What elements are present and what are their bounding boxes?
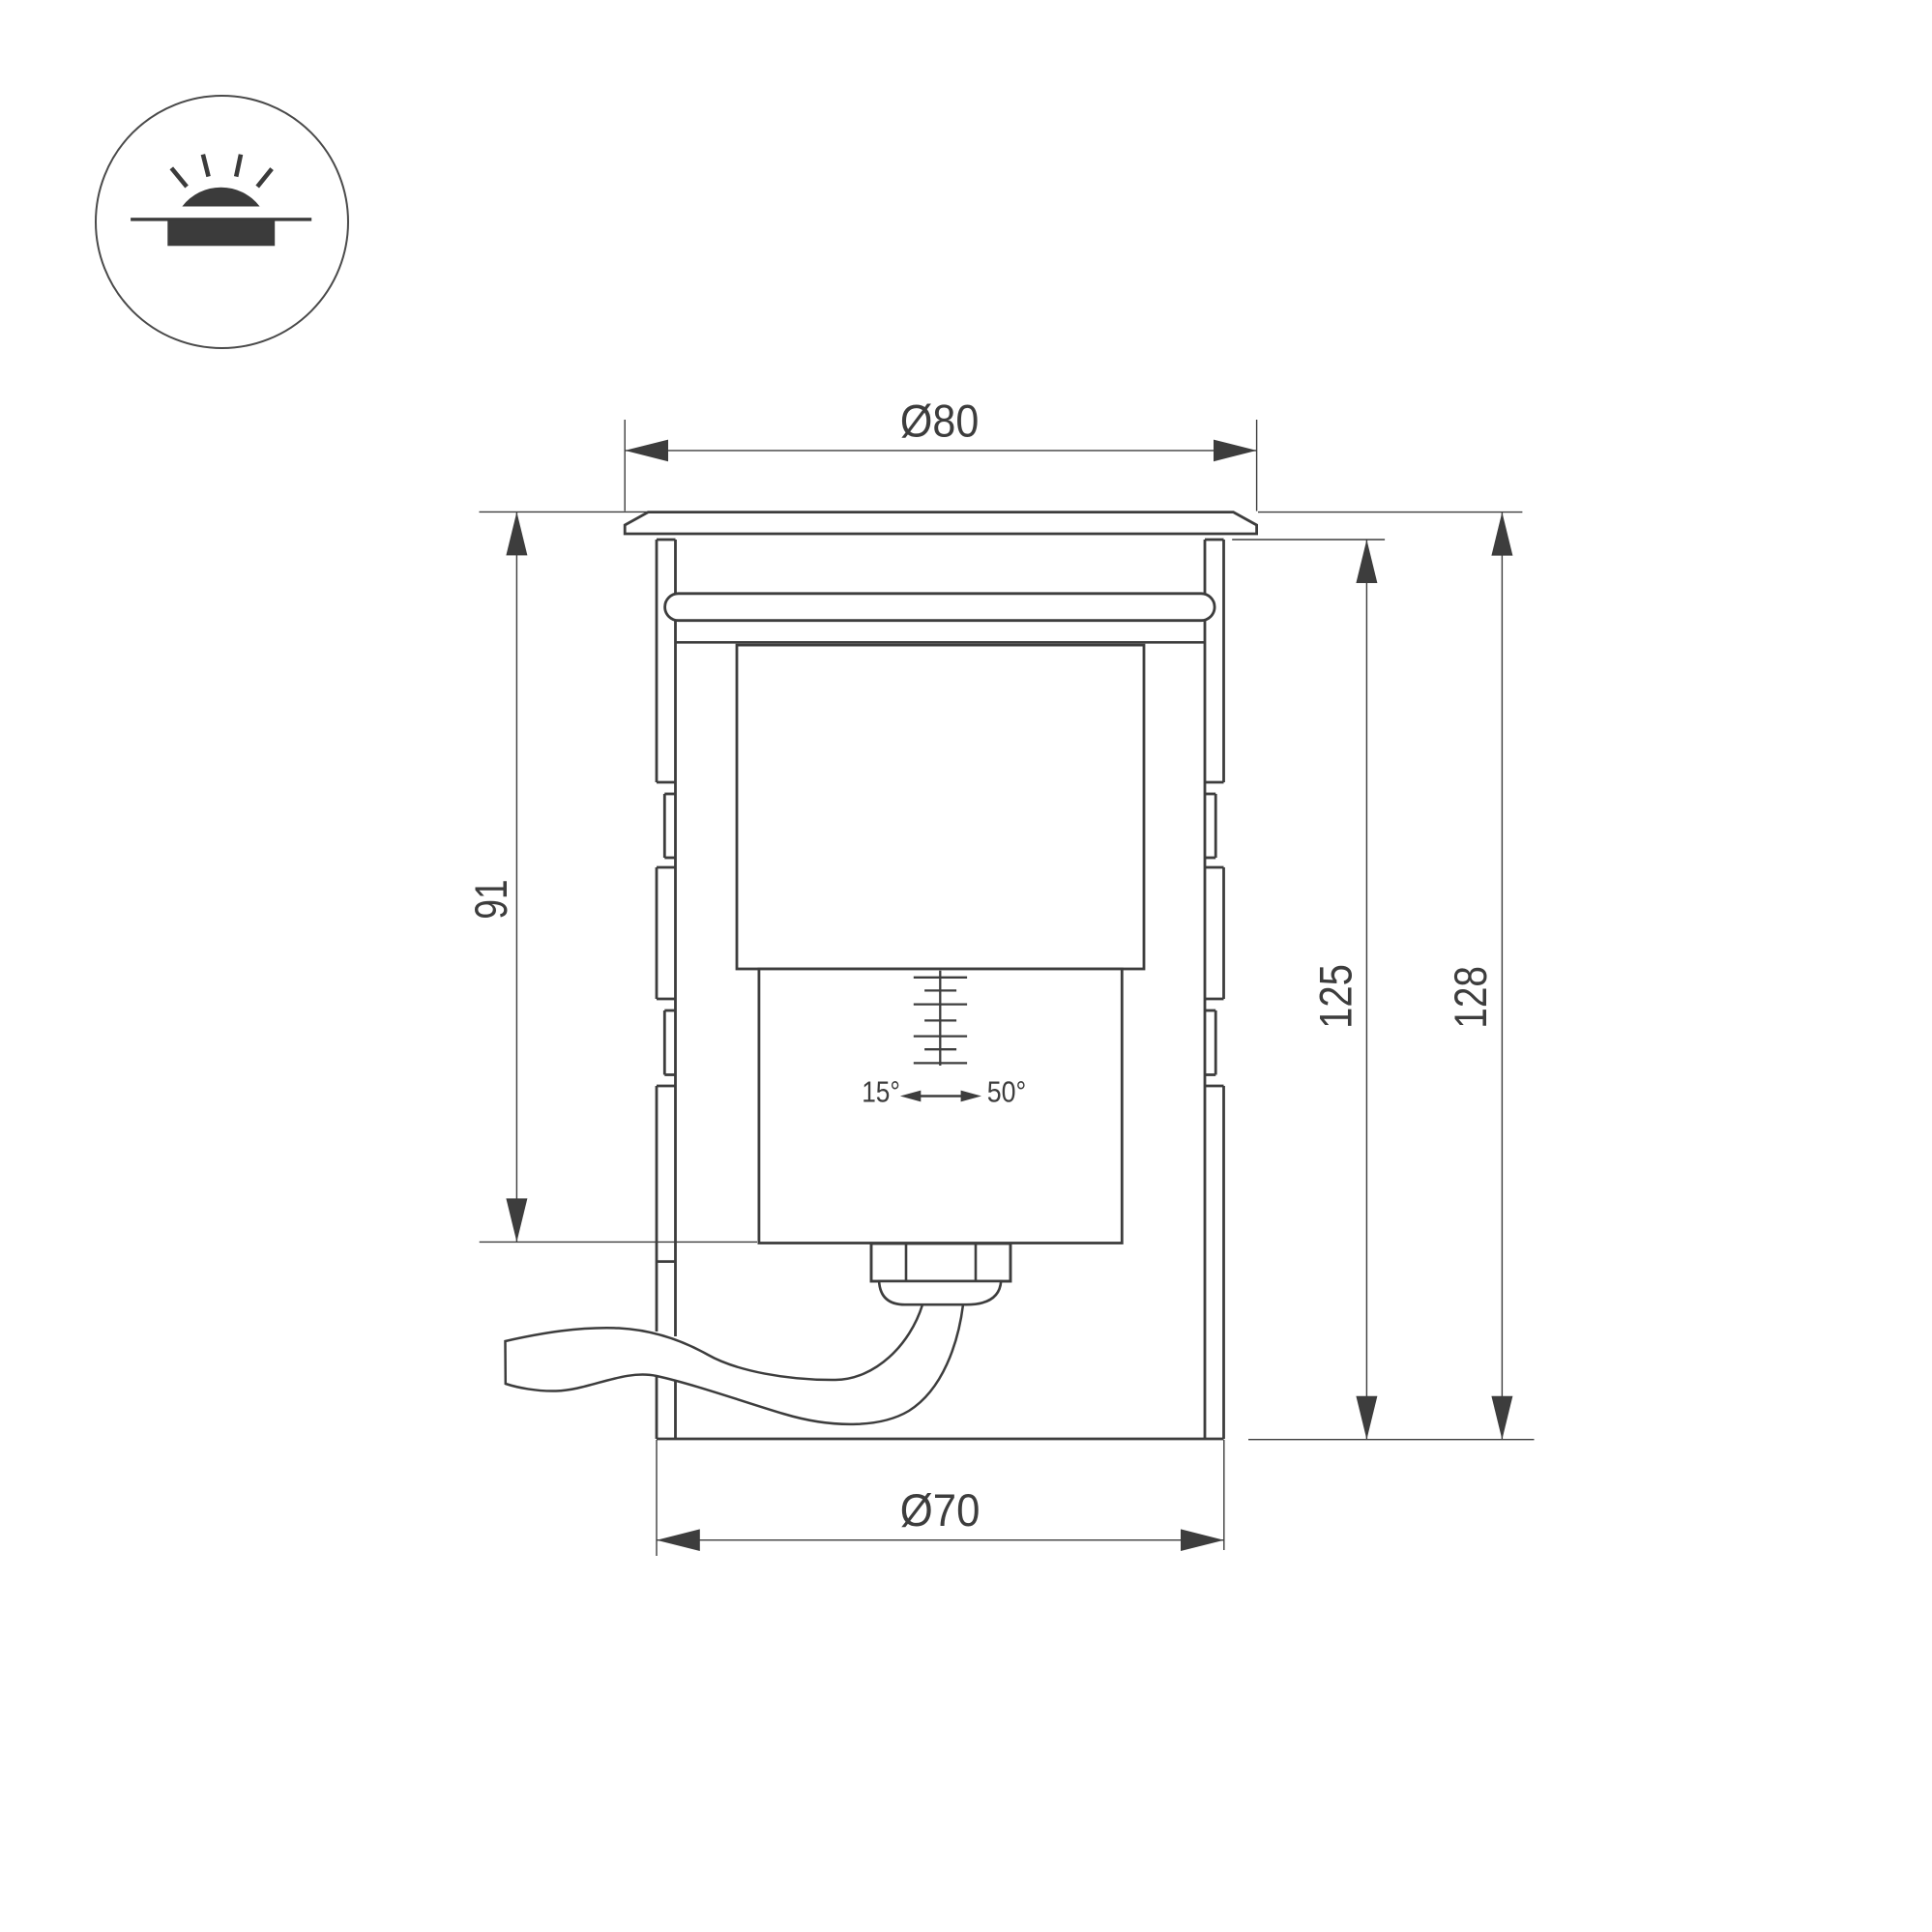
svg-text:91: 91 bbox=[465, 879, 516, 919]
svg-text:Ø80: Ø80 bbox=[900, 395, 979, 447]
svg-text:50°: 50° bbox=[987, 1075, 1026, 1108]
svg-text:Ø70: Ø70 bbox=[900, 1484, 981, 1536]
svg-text:125: 125 bbox=[1310, 964, 1361, 1029]
svg-text:128: 128 bbox=[1445, 966, 1496, 1029]
svg-text:15°: 15° bbox=[862, 1075, 900, 1108]
